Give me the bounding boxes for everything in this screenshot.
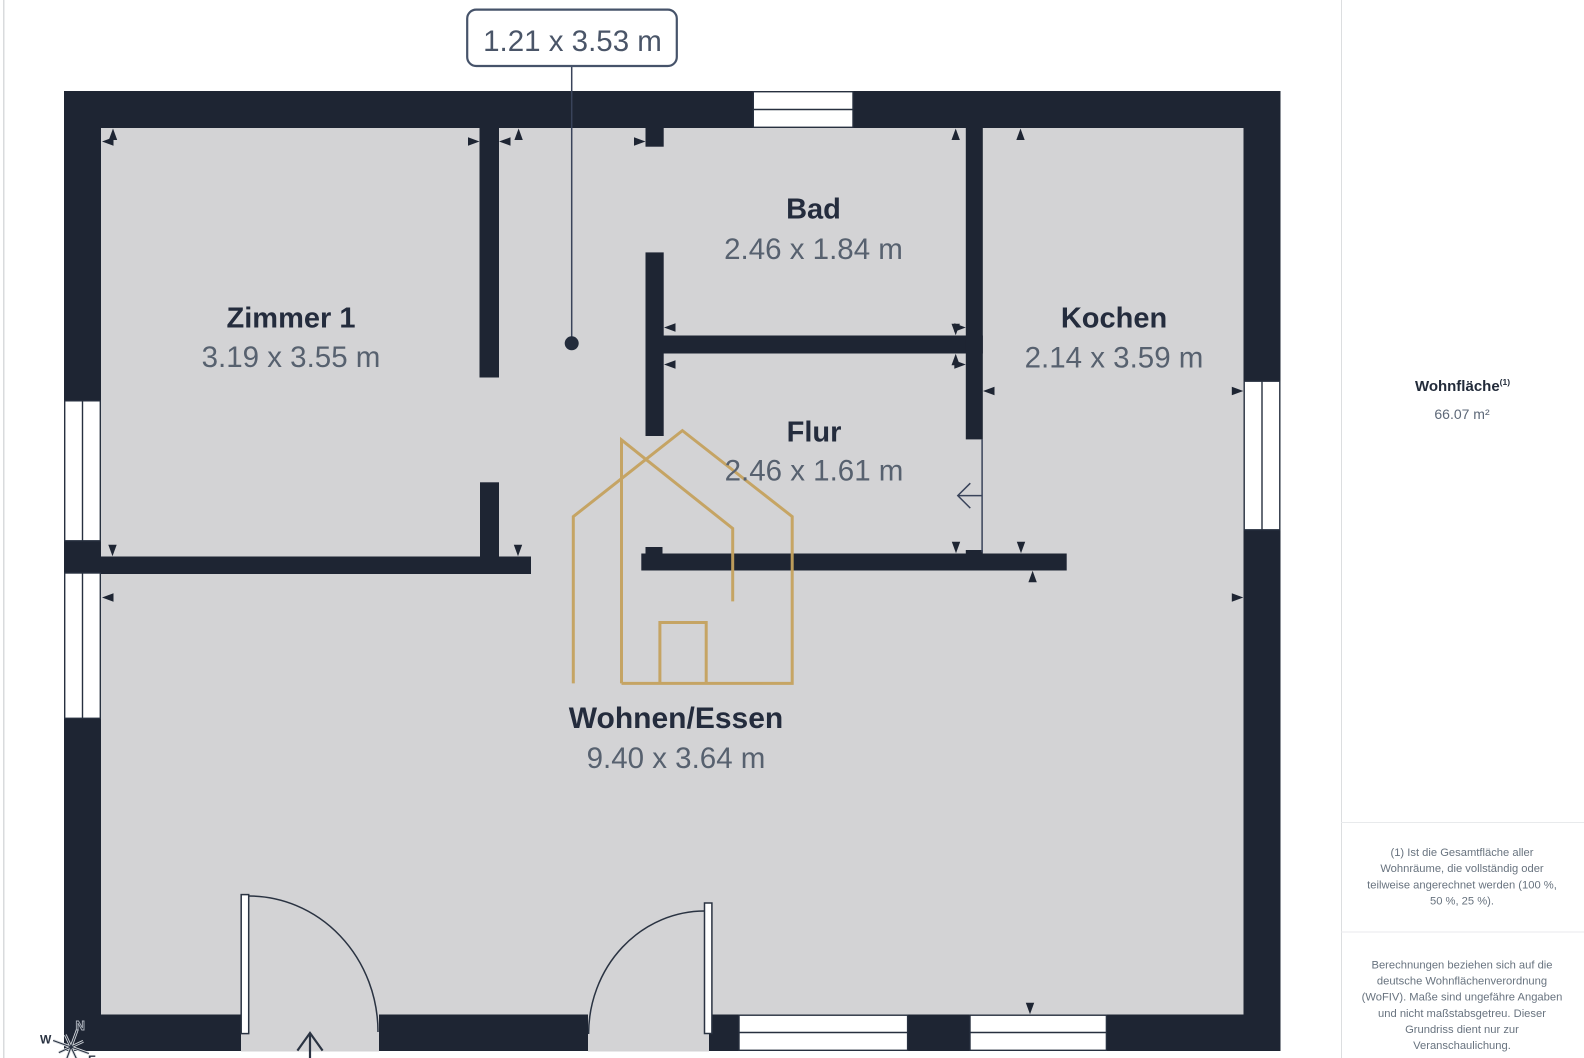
svg-text:E: E [88, 1053, 96, 1058]
svg-text:Wohnen/Essen: Wohnen/Essen [569, 702, 783, 735]
svg-text:N: N [76, 1018, 85, 1033]
svg-text:Wohnfläche(1): Wohnfläche(1) [1415, 377, 1510, 395]
svg-text:Zimmer 1: Zimmer 1 [227, 303, 356, 335]
svg-text:1.21 x 3.53 m: 1.21 x 3.53 m [483, 25, 662, 58]
svg-text:Veranschaulichung.: Veranschaulichung. [1413, 1040, 1511, 1052]
svg-text:W: W [40, 1033, 52, 1047]
svg-text:Grundriss dient nur zur: Grundriss dient nur zur [1405, 1024, 1519, 1036]
svg-text:2.46 x 1.84 m: 2.46 x 1.84 m [724, 233, 903, 266]
svg-text:(1) Ist die Gesamtfläche aller: (1) Ist die Gesamtfläche aller [1390, 847, 1533, 859]
svg-text:teilweise angerechnet werden (: teilweise angerechnet werden (100 %, [1367, 879, 1557, 891]
svg-text:(WoFIV). Maße sind ungefähre A: (WoFIV). Maße sind ungefähre Angaben [1362, 992, 1563, 1004]
svg-text:Wohnräume, die vollständig ode: Wohnräume, die vollständig oder [1380, 863, 1544, 875]
svg-text:Flur: Flur [787, 416, 842, 448]
svg-text:3.19 x 3.55 m: 3.19 x 3.55 m [202, 341, 381, 374]
svg-text:Bad: Bad [786, 194, 841, 226]
svg-text:50 %, 25 %).: 50 %, 25 %). [1430, 896, 1494, 908]
svg-text:9.40 x 3.64 m: 9.40 x 3.64 m [587, 742, 766, 775]
svg-text:66.07 m²: 66.07 m² [1434, 406, 1490, 422]
svg-text:deutsche Wohnflächenverordnung: deutsche Wohnflächenverordnung [1377, 976, 1547, 988]
svg-text:2.46 x 1.61 m: 2.46 x 1.61 m [725, 455, 904, 488]
svg-text:und nicht maßstabsgetreu. Dies: und nicht maßstabsgetreu. Dieser [1378, 1008, 1546, 1020]
svg-text:Berechnungen beziehen sich auf: Berechnungen beziehen sich auf die [1372, 960, 1553, 972]
svg-text:2.14 x 3.59 m: 2.14 x 3.59 m [1025, 341, 1204, 374]
svg-text:Kochen: Kochen [1061, 303, 1167, 335]
